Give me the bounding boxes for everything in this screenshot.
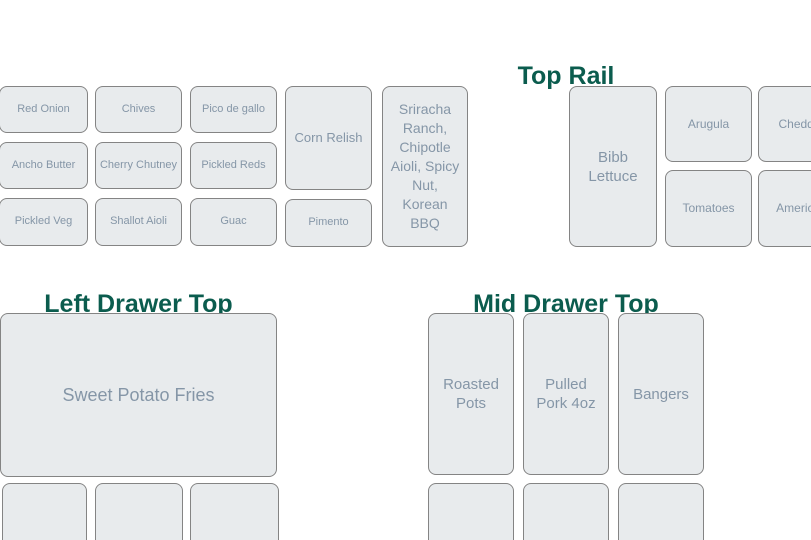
- slot-arugula[interactable]: Arugula: [665, 86, 752, 162]
- slot-pickled-reds[interactable]: Pickled Reds: [190, 142, 277, 189]
- empty-slot[interactable]: [618, 483, 704, 540]
- slot-red-onion[interactable]: Red Onion: [0, 86, 88, 133]
- slot-shallot-aioli[interactable]: Shallot Aioli: [95, 198, 182, 246]
- slot-corn-relish[interactable]: Corn Relish: [285, 86, 372, 190]
- slot-bangers[interactable]: Bangers: [618, 313, 704, 475]
- slot-american[interactable]: American: [758, 170, 811, 247]
- slot-pimento[interactable]: Pimento: [285, 199, 372, 247]
- slot-ancho-butter[interactable]: Ancho Butter: [0, 142, 88, 189]
- empty-slot[interactable]: [190, 483, 279, 540]
- slot-pulled-pork[interactable]: Pulled Pork 4oz: [523, 313, 609, 475]
- kitchen-layout-canvas: Red Onion Chives Pico de gallo Ancho But…: [0, 0, 811, 540]
- empty-slot[interactable]: [428, 483, 514, 540]
- slot-pickled-veg[interactable]: Pickled Veg: [0, 198, 88, 246]
- slot-sweet-potato-fries[interactable]: Sweet Potato Fries: [0, 313, 277, 477]
- slot-cheddar[interactable]: Cheddar: [758, 86, 811, 162]
- slot-pico-de-gallo[interactable]: Pico de gallo: [190, 86, 277, 133]
- slot-tomatoes[interactable]: Tomatoes: [665, 170, 752, 247]
- slot-chives[interactable]: Chives: [95, 86, 182, 133]
- slot-bibb-lettuce[interactable]: Bibb Lettuce: [569, 86, 657, 247]
- empty-slot[interactable]: [523, 483, 609, 540]
- slot-roasted-pots[interactable]: Roasted Pots: [428, 313, 514, 475]
- slot-cherry-chutney[interactable]: Cherry Chutney: [95, 142, 182, 189]
- empty-slot[interactable]: [95, 483, 183, 540]
- slot-guac[interactable]: Guac: [190, 198, 277, 246]
- slot-sauces[interactable]: Sriracha Ranch, Chipotle Aioli, Spicy Nu…: [382, 86, 468, 247]
- empty-slot[interactable]: [2, 483, 87, 540]
